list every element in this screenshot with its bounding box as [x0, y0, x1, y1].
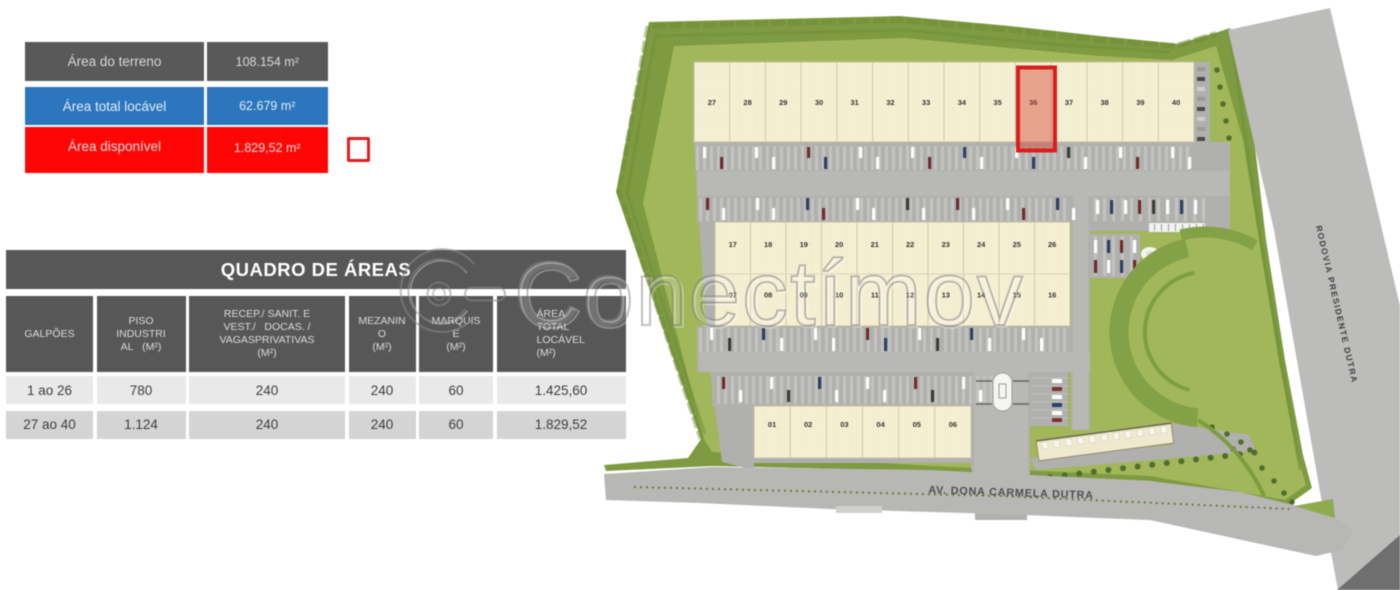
svg-text:35: 35	[993, 98, 1001, 107]
svg-text:16: 16	[1048, 291, 1056, 300]
svg-text:01: 01	[768, 420, 776, 429]
svg-text:02: 02	[804, 420, 812, 429]
svg-text:33: 33	[922, 98, 930, 107]
svg-text:05: 05	[913, 420, 921, 429]
svg-text:26: 26	[1048, 240, 1056, 249]
svg-text:39: 39	[1136, 98, 1144, 107]
svg-text:27: 27	[708, 98, 716, 107]
svg-text:04: 04	[876, 420, 885, 429]
svg-text:32: 32	[886, 98, 894, 107]
svg-text:37: 37	[1065, 98, 1073, 107]
svg-text:40: 40	[1172, 98, 1180, 107]
svg-text:29: 29	[779, 98, 787, 107]
svg-text:Conectímov: Conectímov	[514, 243, 1025, 345]
svg-text:31: 31	[851, 98, 859, 107]
svg-text:30: 30	[815, 98, 823, 107]
svg-text:06: 06	[949, 420, 957, 429]
svg-text:03: 03	[840, 420, 848, 429]
svg-text:28: 28	[743, 98, 751, 107]
svg-text:38: 38	[1101, 98, 1109, 107]
svg-text:34: 34	[958, 98, 967, 107]
